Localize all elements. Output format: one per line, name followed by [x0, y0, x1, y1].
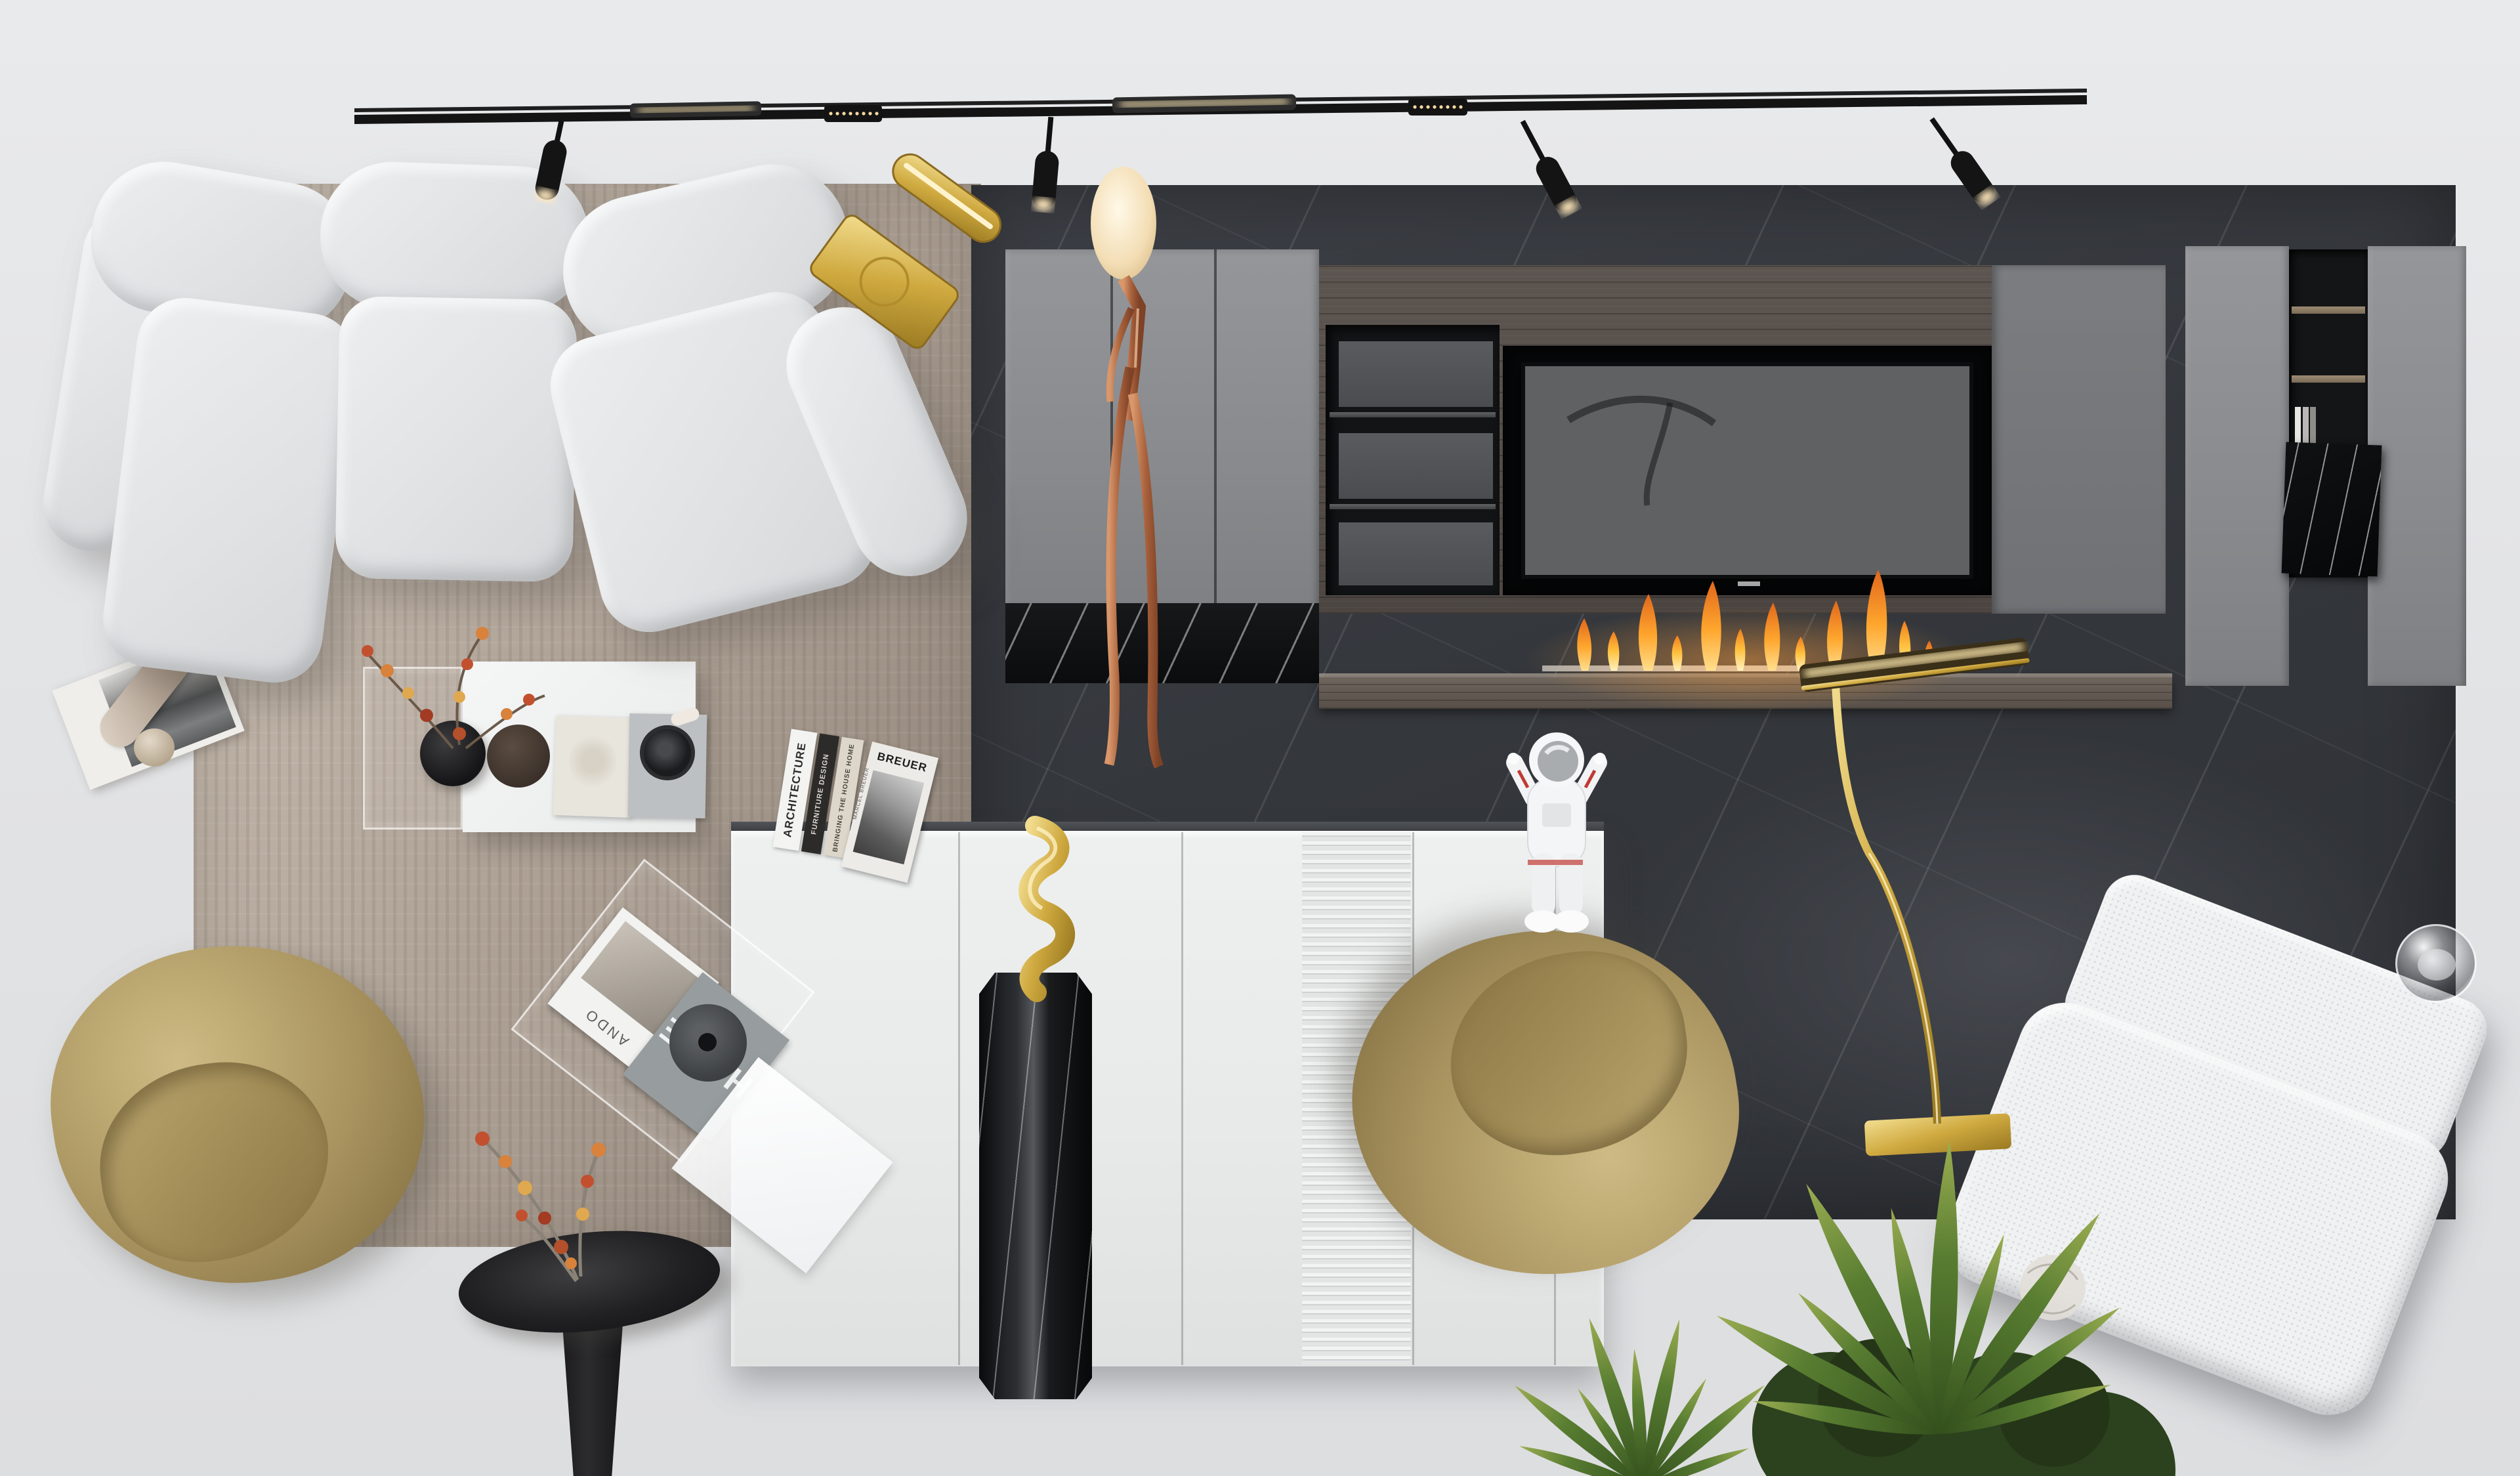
grille-spot-module — [824, 105, 882, 122]
camera-lens-object — [640, 725, 695, 780]
wood-tray — [487, 725, 550, 788]
sofa-chaise-seat — [98, 293, 362, 688]
wood-shelf — [2292, 306, 2365, 314]
black-marble-console — [1005, 603, 1319, 683]
book-title: FURNITURE DESIGN — [810, 753, 830, 835]
living-room-render: ARCHITECTURE FURNITURE DESIGN BRINGING T… — [0, 0, 2520, 1476]
black-marble-board — [2282, 442, 2382, 577]
linear-led-bar — [630, 101, 761, 117]
sofa-back-cushion — [318, 159, 592, 316]
media-cabinet-right-panel — [1992, 265, 2166, 614]
sofa-seat — [335, 296, 577, 582]
shelf-compartment — [1339, 341, 1493, 407]
fireplace-burner-strip — [1542, 665, 1962, 671]
shelf-compartment — [1339, 522, 1493, 585]
black-marble-pedestal — [979, 973, 1092, 1399]
tv-logo — [1738, 581, 1760, 586]
cabinet-seam — [1214, 249, 1217, 609]
wood-sphere — [134, 728, 175, 767]
media-cabinet-left — [1005, 249, 1319, 609]
standing-book-stack: ARCHITECTURE FURNITURE DESIGN BRINGING T… — [770, 729, 947, 890]
tv-screen — [1521, 362, 1973, 579]
wood-mantel-shelf — [1319, 677, 2172, 709]
linear-led-bar — [1112, 95, 1296, 114]
shelf-compartment — [1339, 433, 1493, 499]
cabinet-seam — [1110, 249, 1113, 609]
green-bush — [1752, 1339, 2175, 1476]
sideboard-seam — [958, 832, 960, 1365]
gold-swivel-chair-right — [1329, 902, 1762, 1303]
sideboard-seam — [1181, 832, 1183, 1365]
gold-swivel-chair-left — [31, 921, 445, 1307]
modular-sofa — [59, 176, 965, 688]
tall-cabinet-a — [2185, 246, 2289, 686]
cream-art-book — [553, 715, 633, 818]
glass-sphere-reflection — [2418, 949, 2456, 980]
bowl-center — [698, 1033, 717, 1051]
shelf-board — [1330, 412, 1496, 417]
black-round-vase — [420, 721, 486, 786]
shelf-board — [1330, 504, 1496, 509]
grille-spot-module — [1408, 98, 1467, 116]
wood-shelf — [2292, 375, 2365, 383]
tall-cabinet-b — [2368, 246, 2466, 686]
